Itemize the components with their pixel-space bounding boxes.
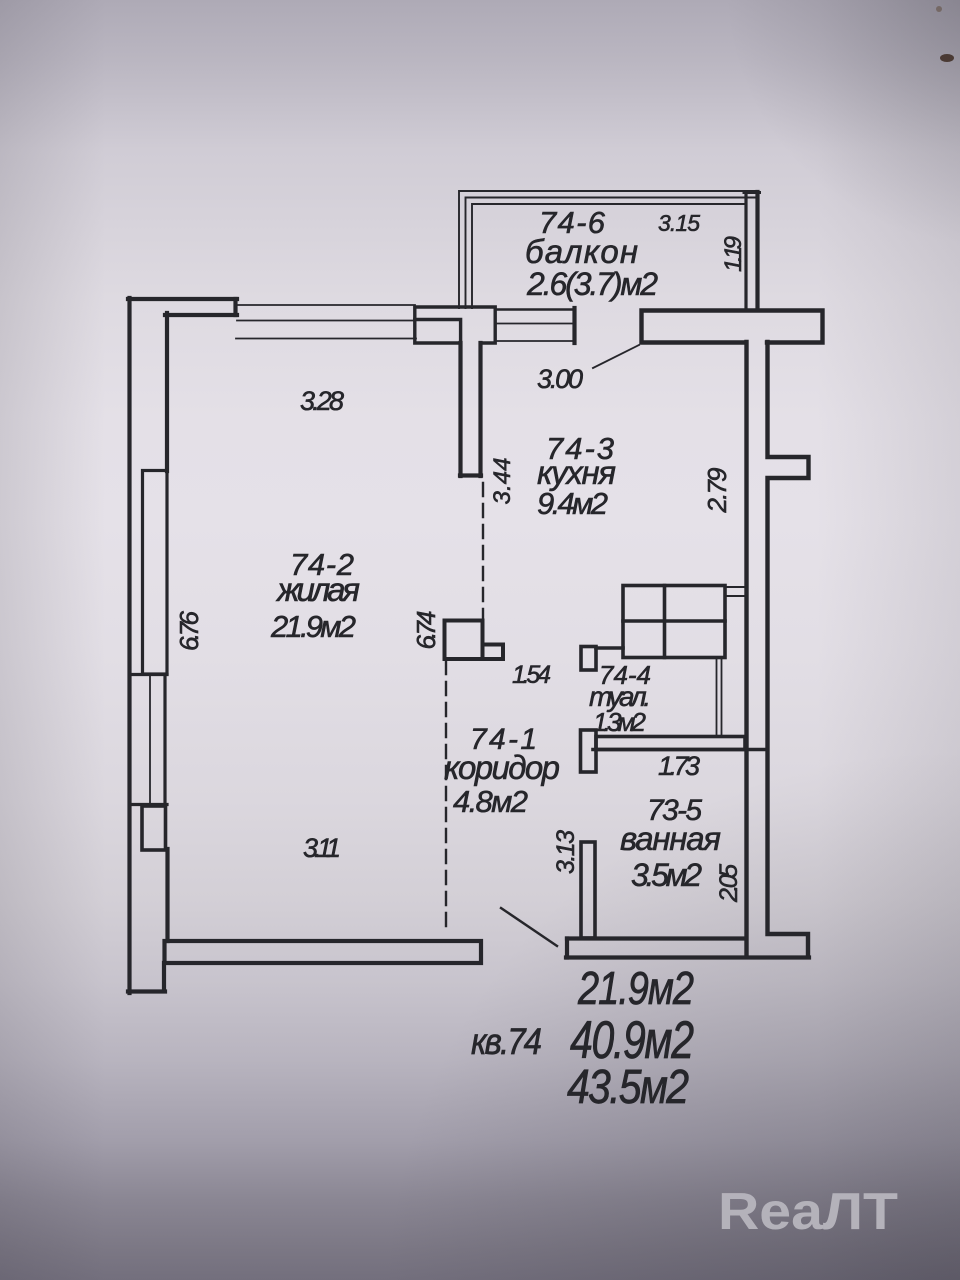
svg-text:1.54: 1.54 [512,661,551,689]
svg-text:21.9м2: 21.9м2 [577,962,694,1015]
svg-text:6.74: 6.74 [411,611,441,650]
svg-text:4.8м2: 4.8м2 [453,784,528,819]
svg-text:6.76: 6.76 [174,610,204,651]
svg-text:2.05: 2.05 [715,864,743,903]
svg-text:43.5м2: 43.5м2 [567,1061,689,1114]
svg-text:2.6(3.7)м2: 2.6(3.7)м2 [526,266,658,302]
svg-text:коридор: коридор [444,749,560,786]
svg-text:1.73: 1.73 [658,751,700,781]
svg-text:жилая: жилая [275,571,360,608]
svg-text:3.28: 3.28 [300,386,344,416]
svg-text:3.13: 3.13 [552,830,580,874]
svg-text:2.79: 2.79 [702,468,732,514]
svg-text:1.3м2: 1.3м2 [593,707,647,737]
svg-text:3.15: 3.15 [658,210,700,236]
svg-text:3.44: 3.44 [489,458,516,505]
svg-text:балкон: балкон [525,233,638,270]
svg-text:9.4м2: 9.4м2 [537,486,608,521]
svg-text:ванная: ванная [620,820,721,857]
svg-text:3.5м2: 3.5м2 [631,857,702,893]
svg-text:3.00: 3.00 [537,364,583,394]
svg-text:21.9м2: 21.9м2 [270,609,356,644]
svg-text:1.19: 1.19 [720,236,747,272]
svg-text:ReaЛТ: ReaЛТ [718,1183,898,1241]
svg-text:3.11: 3.11 [303,833,341,863]
svg-text:кв.74: кв.74 [471,1021,542,1062]
